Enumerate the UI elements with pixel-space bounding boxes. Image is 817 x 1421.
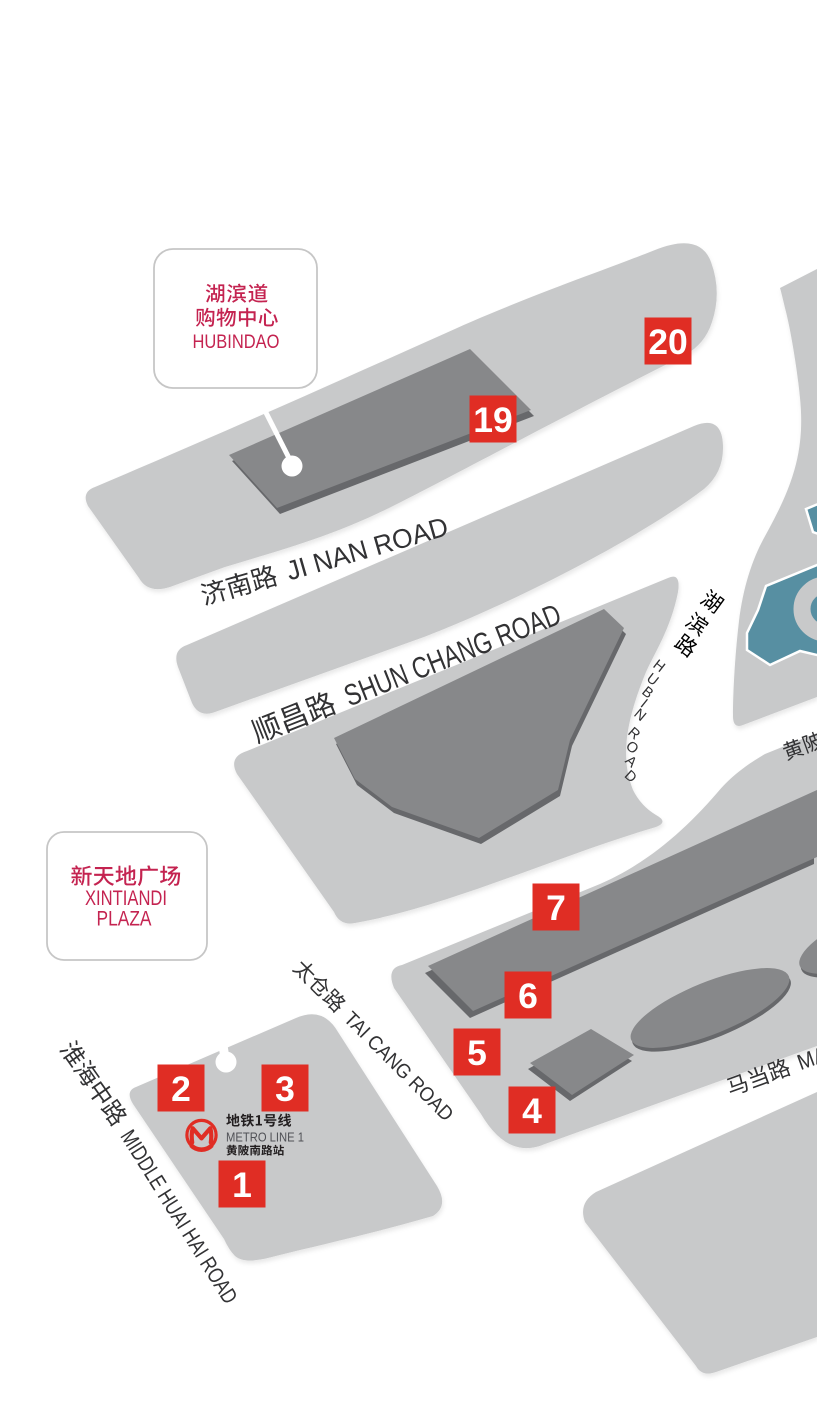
- svg-text:20: 20: [648, 322, 688, 362]
- svg-text:1: 1: [232, 1165, 252, 1205]
- svg-text:HUBINDAO: HUBINDAO: [193, 331, 280, 353]
- svg-text:PLAZA: PLAZA: [97, 908, 152, 931]
- svg-text:7: 7: [546, 888, 566, 928]
- svg-text:19: 19: [473, 400, 513, 440]
- svg-text:6: 6: [518, 976, 538, 1016]
- svg-text:METRO LINE 1: METRO LINE 1: [226, 1130, 304, 1145]
- svg-text:3: 3: [275, 1069, 295, 1109]
- svg-text:2: 2: [171, 1069, 191, 1109]
- svg-text:5: 5: [467, 1033, 487, 1073]
- svg-text:4: 4: [522, 1091, 542, 1131]
